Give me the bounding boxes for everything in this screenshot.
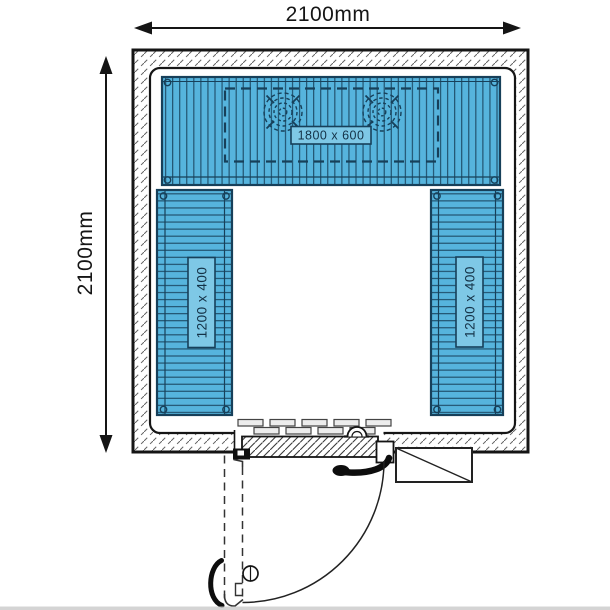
- grille-plate: [318, 428, 343, 435]
- shelf-left-label: 1200 x 400: [194, 267, 209, 339]
- shelf-right-label-group: 1200 x 400: [456, 257, 483, 347]
- grille-plate: [334, 420, 359, 427]
- closer-body: [333, 465, 350, 476]
- grille-plate: [238, 420, 263, 427]
- shelf-top: 1800 x 600: [162, 77, 500, 185]
- coldroom-floorplan: 2100mm 2100mm: [0, 0, 610, 610]
- hinge-slot: [238, 451, 245, 456]
- door-hinge: [233, 449, 250, 460]
- dimension-top-label: 2100mm: [286, 3, 371, 26]
- grille-plate: [254, 428, 279, 435]
- grille-plate: [302, 420, 327, 427]
- condenser-unit: [396, 448, 472, 482]
- shelf-right: 1200 x 400: [431, 190, 503, 415]
- dimension-left-label: 2100mm: [74, 211, 97, 296]
- floorplan-canvas: 2100mm 2100mm: [0, 0, 610, 610]
- shelf-left-label-group: 1200 x 400: [188, 258, 215, 348]
- grille-plate: [286, 428, 311, 435]
- shelf-right-label: 1200 x 400: [462, 266, 477, 338]
- shelf-left: 1200 x 400: [157, 190, 232, 415]
- grille-plate: [270, 420, 295, 427]
- bottom-border-line: [0, 607, 610, 610]
- door-slab: [242, 437, 378, 458]
- shelf-top-label: 1800 x 600: [298, 129, 365, 143]
- grille-plate: [366, 420, 391, 427]
